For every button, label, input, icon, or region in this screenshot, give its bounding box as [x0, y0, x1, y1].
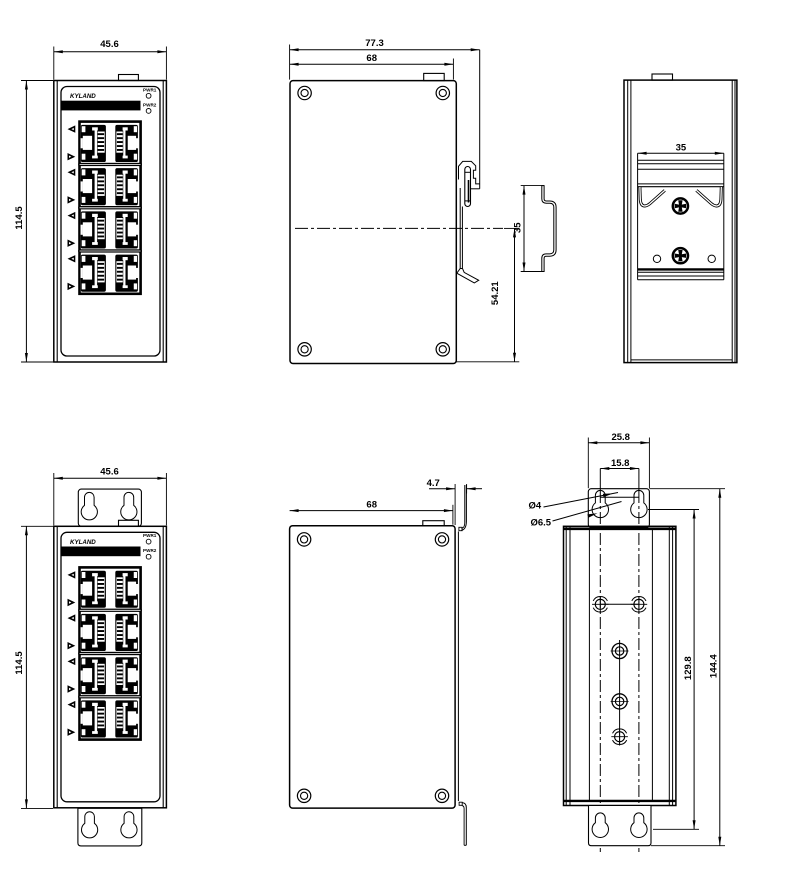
svg-text:PWR2: PWR2 — [143, 548, 157, 553]
svg-text:144.4: 144.4 — [709, 654, 720, 678]
svg-text:15.8: 15.8 — [611, 458, 630, 469]
svg-text:114.5: 114.5 — [14, 206, 25, 230]
svg-text:25.8: 25.8 — [611, 432, 630, 443]
svg-text:PWR1: PWR1 — [143, 87, 157, 92]
svg-text:129.8: 129.8 — [683, 656, 694, 680]
svg-text:PWR1: PWR1 — [143, 533, 157, 538]
svg-text:45.6: 45.6 — [100, 39, 119, 50]
svg-text:KYLAND: KYLAND — [70, 93, 96, 100]
svg-text:45.6: 45.6 — [100, 467, 119, 478]
svg-text:77.3: 77.3 — [365, 38, 384, 49]
svg-text:KYLAND: KYLAND — [70, 539, 96, 546]
svg-text:4.7: 4.7 — [427, 478, 440, 489]
svg-text:35: 35 — [513, 222, 524, 233]
svg-text:Ø6.5: Ø6.5 — [531, 518, 552, 529]
svg-text:54.21: 54.21 — [490, 281, 501, 305]
svg-text:PWR2: PWR2 — [143, 102, 157, 107]
svg-text:68: 68 — [366, 53, 377, 64]
svg-text:35: 35 — [676, 142, 687, 153]
svg-text:Ø4: Ø4 — [529, 501, 542, 512]
svg-text:68: 68 — [366, 500, 377, 511]
svg-text:114.5: 114.5 — [14, 651, 25, 675]
